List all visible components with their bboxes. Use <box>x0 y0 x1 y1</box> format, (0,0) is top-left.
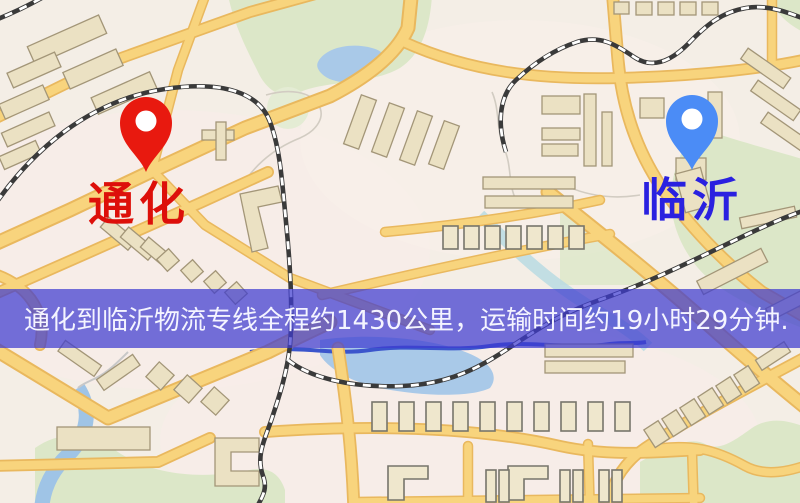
origin-label: 通化 <box>88 181 190 227</box>
route-info-text: 通化到临沂物流专线全程约1430公里，运输时间约19小时29分钟. <box>0 300 789 337</box>
map[interactable]: 通化 临沂 通化到临沂物流专线全程约1430公里，运输时间约19小时29分钟. <box>0 0 800 503</box>
destination-label: 临沂 <box>641 177 743 223</box>
route-info-banner: 通化到临沂物流专线全程约1430公里，运输时间约19小时29分钟. <box>0 289 800 348</box>
map-canvas <box>0 0 800 503</box>
